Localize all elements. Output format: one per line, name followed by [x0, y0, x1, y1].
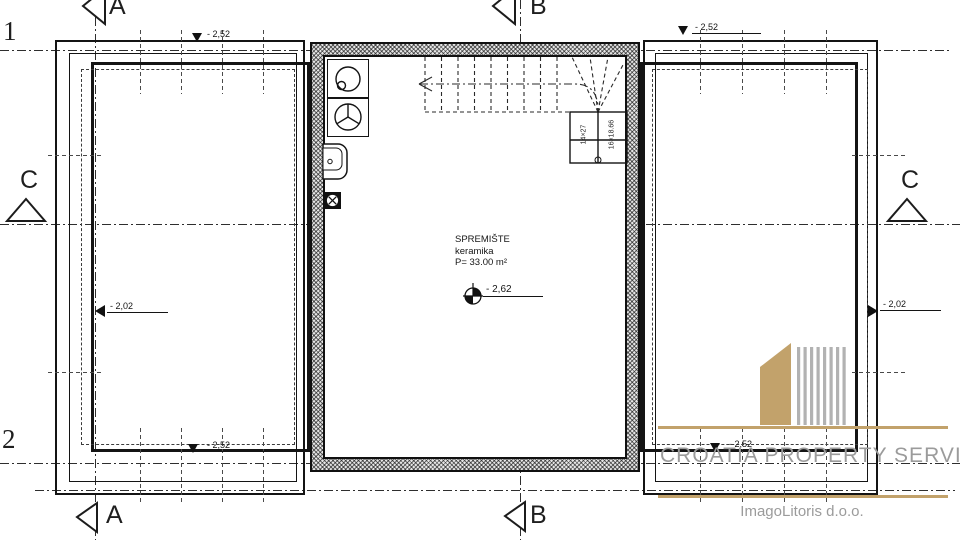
- tick: [826, 30, 827, 94]
- tick: [700, 30, 701, 94]
- room-finish: keramika: [455, 246, 510, 258]
- section-label-c-left: C: [20, 168, 38, 193]
- grid-label-1: 1: [3, 18, 17, 45]
- tick: [784, 30, 785, 94]
- stair-rise-label: 16×18.66: [609, 111, 616, 159]
- level-sill-top-left: - 2,52: [204, 29, 273, 41]
- level-storage: - 2,62: [483, 285, 543, 297]
- stair-run-label: 14×27: [581, 115, 588, 155]
- appliance-divider: [327, 97, 369, 99]
- right-wing-overhang-line: [652, 69, 868, 445]
- tick: [140, 428, 141, 502]
- section-a-bottom-icon: [77, 503, 97, 532]
- section-c-right-icon: [888, 199, 926, 221]
- section-a-top-icon: [83, 0, 105, 24]
- logo-rule-bottom: [658, 495, 948, 498]
- room-area: P= 33.00 m²: [455, 257, 510, 269]
- level-sill-bottom-left: - 2,52: [204, 440, 271, 452]
- section-label-c-right: C: [901, 168, 919, 193]
- level-terrace-left: - 2,02: [107, 301, 168, 313]
- logo-rule-top: [658, 426, 948, 429]
- floor-plan-canvas: 1 2 A A B B C C SPREMIŠTE keramika P= 33…: [0, 0, 960, 540]
- tick: [48, 372, 102, 373]
- tick: [852, 372, 906, 373]
- section-label-a-top: A: [109, 0, 126, 19]
- grid-label-2: 2: [2, 426, 16, 453]
- section-label-b-top: B: [530, 0, 547, 19]
- section-label-a-bottom: A: [106, 503, 123, 528]
- tick: [48, 155, 102, 156]
- section-b-top-icon: [493, 0, 515, 24]
- room-label: SPREMIŠTE keramika P= 33.00 m²: [455, 234, 510, 269]
- tick: [181, 30, 182, 94]
- tick: [140, 30, 141, 94]
- section-label-b-bottom: B: [530, 503, 547, 528]
- section-c-left-icon: [7, 199, 45, 221]
- company-name: CROATIA PROPERTY SERVICE: [660, 444, 948, 468]
- tick: [181, 428, 182, 502]
- level-terrace-right: - 2,02: [880, 299, 941, 311]
- room-name: SPREMIŠTE: [455, 234, 510, 246]
- section-b-bottom-icon: [505, 502, 525, 531]
- tick: [852, 155, 906, 156]
- level-sill-top-right: - 2,52: [692, 22, 761, 34]
- tick: [742, 30, 743, 94]
- left-wing-overhang-line: [81, 69, 295, 445]
- studio-name: ImagoLitoris d.o.o.: [722, 503, 882, 520]
